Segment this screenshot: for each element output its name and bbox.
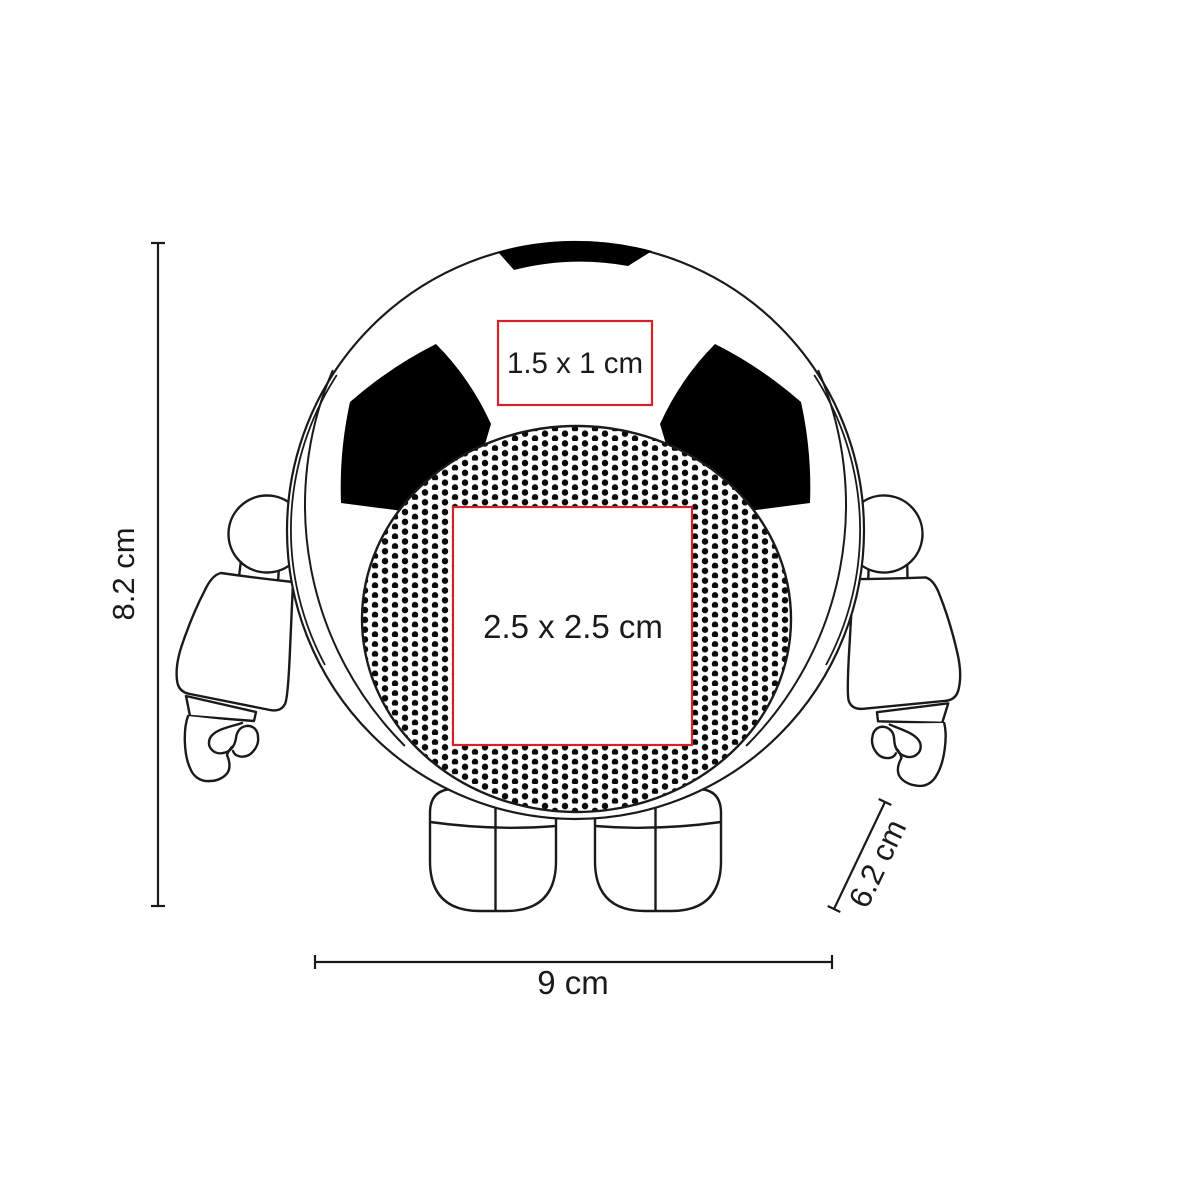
svg-text:9 cm: 9 cm: [537, 964, 609, 1001]
svg-text:8.2 cm: 8.2 cm: [106, 527, 141, 620]
svg-text:2.5 x 2.5 cm: 2.5 x 2.5 cm: [483, 608, 663, 645]
svg-text:1.5 x 1 cm: 1.5 x 1 cm: [507, 347, 643, 380]
